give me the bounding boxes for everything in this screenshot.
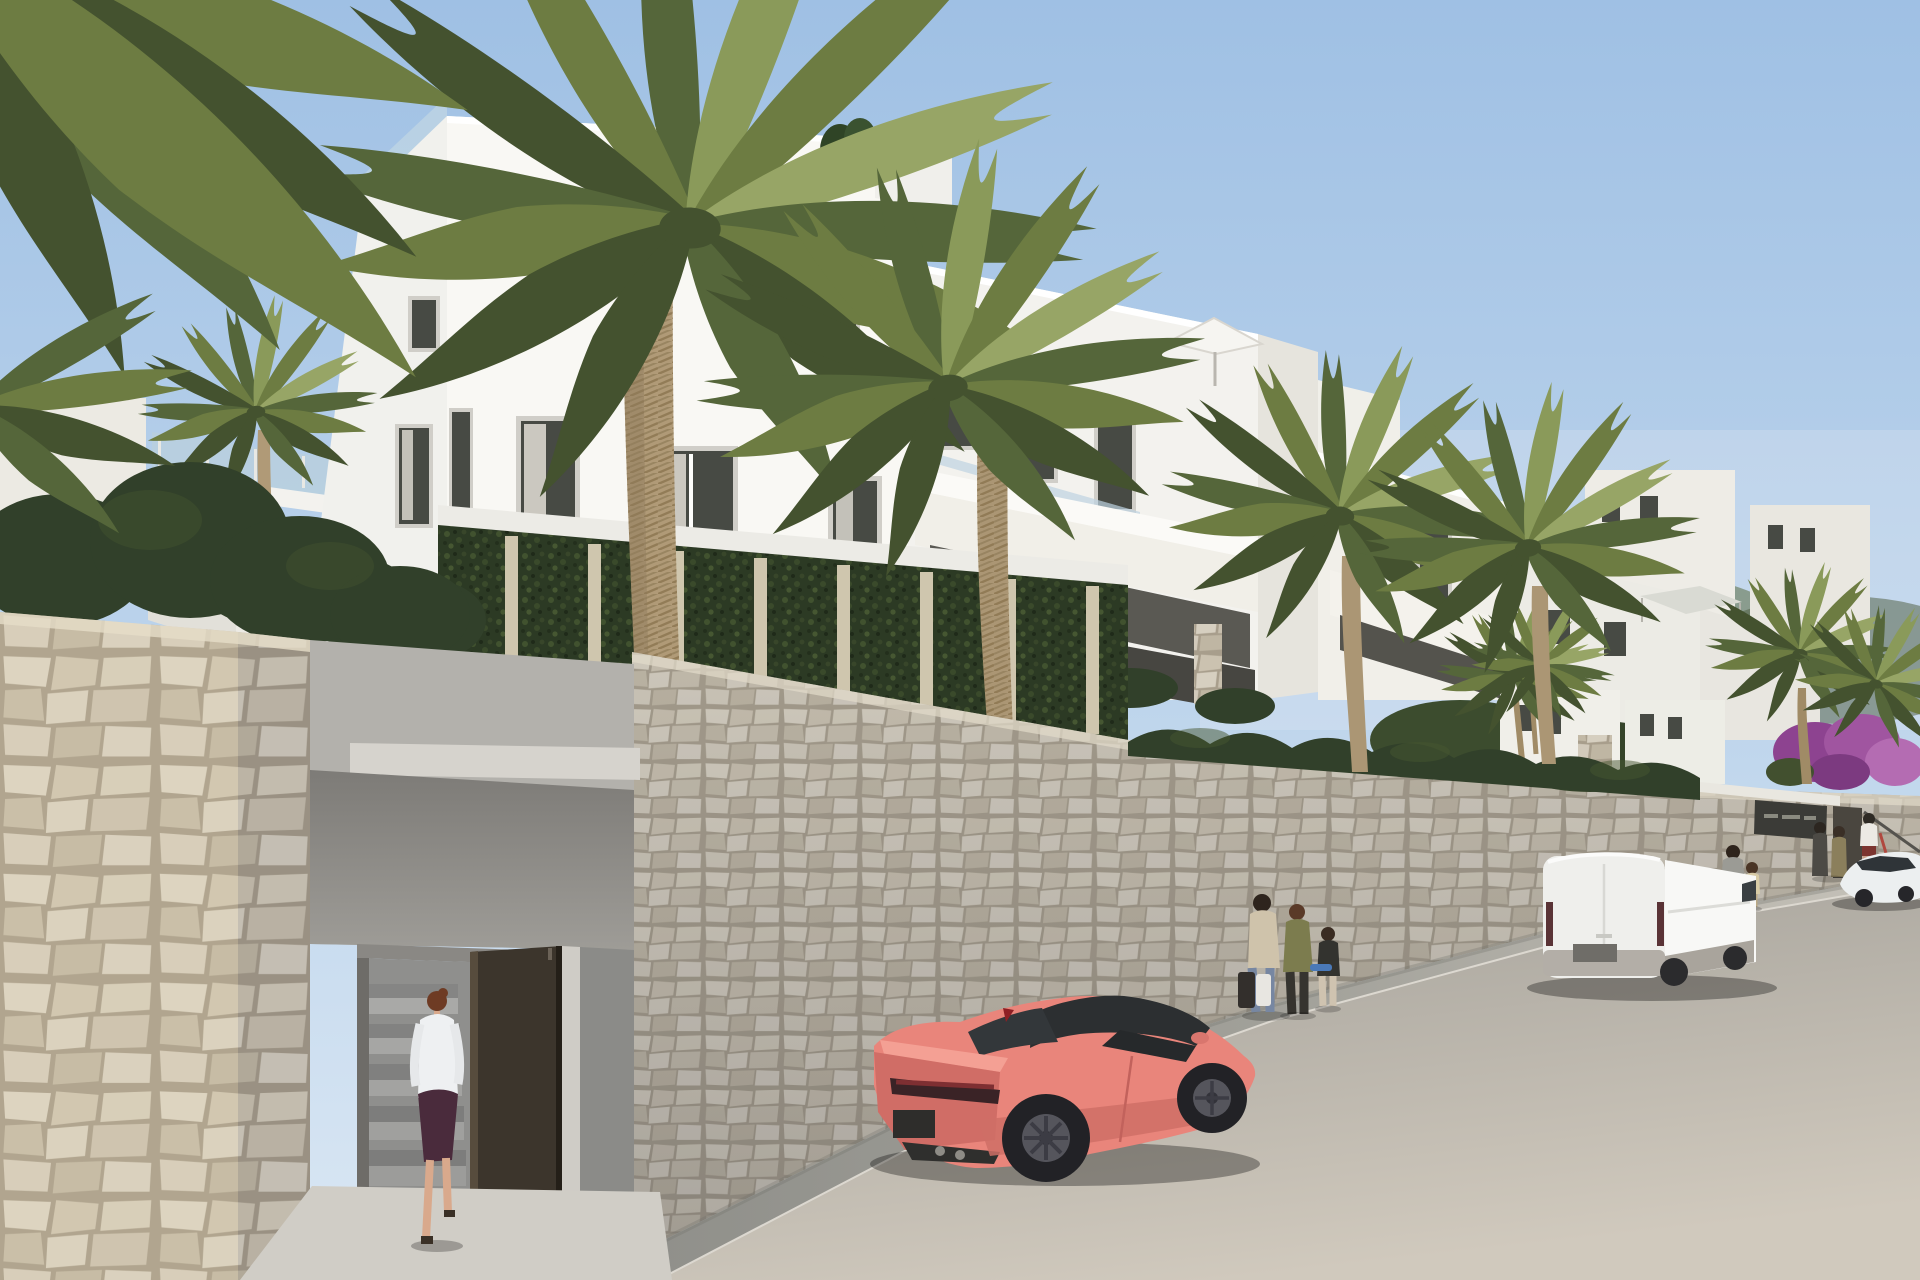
van-door-handle — [1596, 934, 1612, 938]
skateboard — [1310, 964, 1332, 971]
door-jamb — [562, 946, 580, 1198]
entrance-apron — [240, 1186, 672, 1280]
car-wheel-front — [1177, 1063, 1247, 1133]
van-taillight — [1546, 902, 1553, 946]
van-taillight — [1657, 902, 1664, 946]
car-wheel-rear — [1002, 1094, 1090, 1182]
shopping-bag-dark — [1238, 972, 1255, 1008]
car-plate — [893, 1110, 935, 1138]
coral-sports-car — [870, 996, 1260, 1186]
scene-render: Modern apartment development - exterior … — [0, 0, 1920, 1280]
entrance-door — [470, 946, 562, 1208]
white-van — [1527, 854, 1777, 1001]
van-plate — [1573, 944, 1617, 962]
car-mirror — [1191, 1032, 1209, 1044]
render-stage: Modern apartment development - exterior … — [0, 0, 1920, 1280]
entrance-side-wall — [580, 947, 634, 1212]
entrance-structure — [310, 640, 640, 1212]
shopping-bag-white — [1256, 974, 1271, 1006]
entrance-beam — [350, 743, 640, 780]
